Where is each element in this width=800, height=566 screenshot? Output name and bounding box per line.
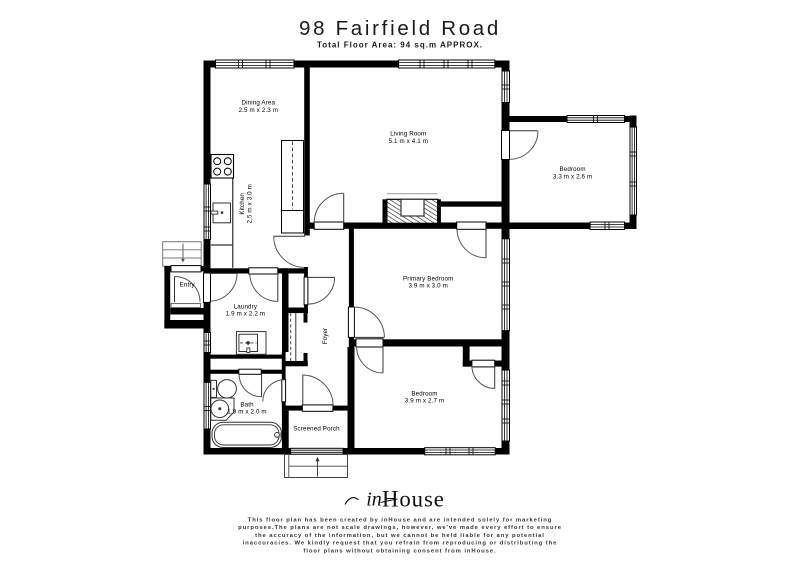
svg-text:Screened Porch: Screened Porch [293,425,340,432]
svg-text:Bedroom: Bedroom [411,390,437,397]
svg-text:floor plans without obtaining: floor plans without obtaining consent fr… [303,548,496,554]
svg-text:3.3 m x 2.6 m: 3.3 m x 2.6 m [553,174,592,181]
svg-text:Kitchen: Kitchen [239,193,246,215]
svg-text:Dining Area: Dining Area [241,99,275,106]
svg-text:1.9 m x 2.2 m: 1.9 m x 2.2 m [226,310,265,317]
svg-text:House: House [382,487,445,512]
svg-text:Foyer: Foyer [322,328,329,345]
svg-text:Entry: Entry [180,282,196,289]
svg-text:2.5 m x 2.3 m: 2.5 m x 2.3 m [239,107,278,114]
svg-text:in: in [366,489,382,511]
svg-text:Primary Bedroom: Primary Bedroom [403,275,453,282]
svg-text:inaccuracies. We kindly reques: inaccuracies. We kindly request that you… [243,541,558,547]
svg-text:Laundry: Laundry [234,303,258,310]
svg-text:3.9 m x 3.0 m: 3.9 m x 3.0 m [408,282,447,289]
svg-text:5.1 m x 4.1 m: 5.1 m x 4.1 m [389,138,428,145]
svg-text:purposes.The plans are not sca: purposes.The plans are not scale drawing… [238,525,562,531]
svg-text:Living Room: Living Room [390,130,426,137]
svg-text:Bath: Bath [240,401,254,408]
svg-text:2.5 m x 3.0 m: 2.5 m x 3.0 m [247,184,254,223]
svg-text:98 Fairfield Road: 98 Fairfield Road [299,17,501,40]
svg-text:Total Floor Area: 94 sq.m APPR: Total Floor Area: 94 sq.m APPROX. [317,41,483,50]
svg-text:Bedroom: Bedroom [560,166,586,173]
svg-text:the accuracy of the informatio: the accuracy of the information, but we … [255,533,545,539]
svg-text:This floor plan has been creat: This floor plan has been created by inHo… [248,518,553,524]
svg-text:1.9 m x 2.0 m: 1.9 m x 2.0 m [227,408,266,415]
svg-text:3.9 m x 2.7 m: 3.9 m x 2.7 m [405,397,444,404]
